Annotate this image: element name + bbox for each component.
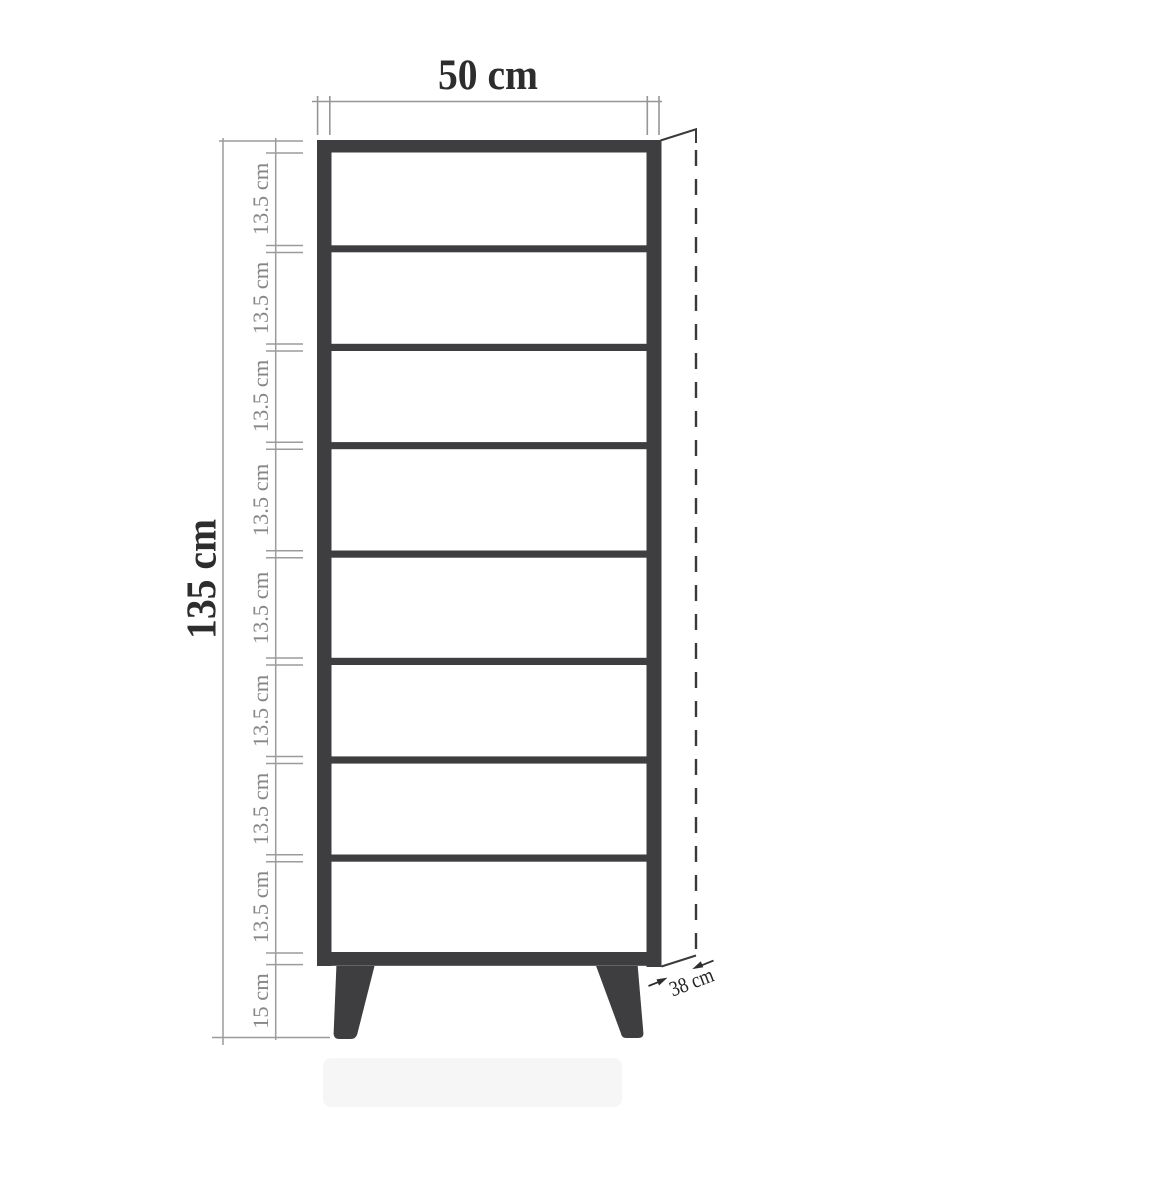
svg-text:135 cm: 135 cm <box>180 519 226 639</box>
svg-text:13.5 cm: 13.5 cm <box>248 870 273 943</box>
svg-text:50 cm: 50 cm <box>438 51 538 99</box>
svg-text:13.5 cm: 13.5 cm <box>248 674 273 747</box>
svg-text:13.5 cm: 13.5 cm <box>248 359 273 432</box>
svg-text:38 cm: 38 cm <box>666 963 717 1002</box>
svg-text:13.5 cm: 13.5 cm <box>248 772 273 845</box>
svg-text:13.5 cm: 13.5 cm <box>248 571 273 644</box>
svg-text:13.5 cm: 13.5 cm <box>248 162 273 235</box>
svg-text:13.5 cm: 13.5 cm <box>248 463 273 536</box>
svg-text:13.5 cm: 13.5 cm <box>248 261 273 334</box>
svg-text:15 cm: 15 cm <box>248 973 273 1029</box>
